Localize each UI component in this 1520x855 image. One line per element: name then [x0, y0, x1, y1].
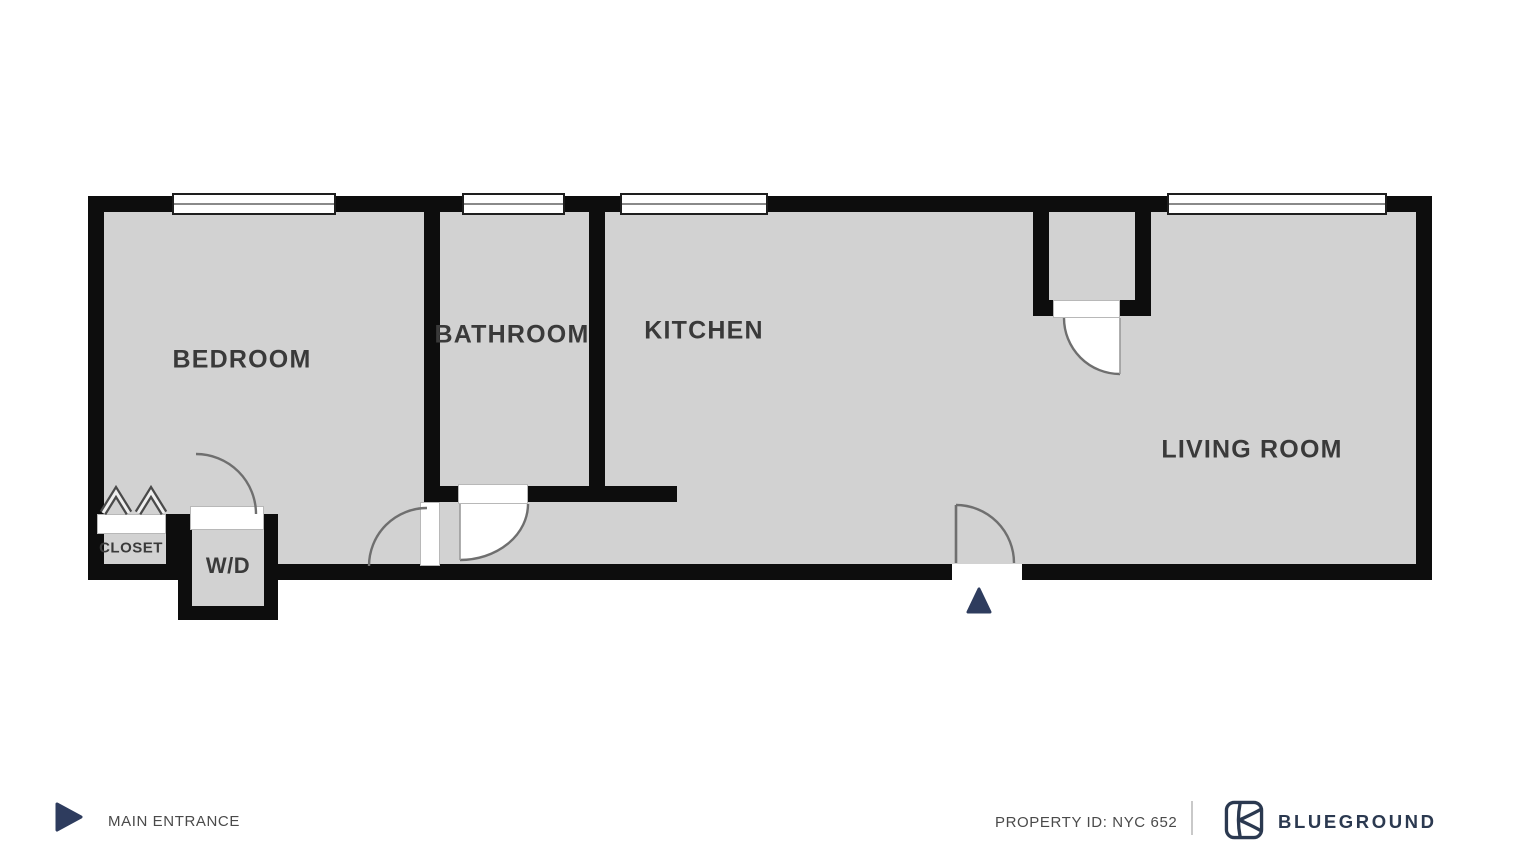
room-label-bathroom: BATHROOM — [435, 321, 590, 350]
bedroom-window — [172, 193, 336, 215]
main-entrance-triangle-icon — [54, 802, 84, 832]
room-label-living-room: LIVING ROOM — [1161, 436, 1342, 465]
floor-plan-page: BEDROOM BATHROOM KITCHEN LIVING ROOM CLO… — [0, 0, 1520, 855]
apartment-floor — [104, 212, 1416, 564]
kitchen-window — [620, 193, 768, 215]
blueground-logo-icon — [1224, 800, 1264, 840]
bedroom-door-leaf — [420, 502, 440, 566]
brand-wordmark: BLUEGROUND — [1278, 811, 1437, 833]
property-id-label: PROPERTY ID: NYC 652 — [995, 814, 1177, 831]
living-room-window — [1167, 193, 1387, 215]
entrance-marker-triangle-icon — [968, 589, 990, 612]
room-label-bedroom: BEDROOM — [173, 346, 312, 375]
main-entrance-opening — [952, 564, 1022, 580]
wall-bathroom-kitchen — [589, 212, 605, 502]
room-label-kitchen: KITCHEN — [644, 317, 764, 346]
alcove-door-opening — [1053, 300, 1120, 318]
closet-opening — [97, 514, 166, 534]
room-label-closet: CLOSET — [99, 540, 163, 557]
footer-divider — [1191, 801, 1193, 835]
wall-bedroom-bathroom — [424, 212, 440, 502]
wd-door-opening — [190, 506, 264, 530]
bathroom-door-opening — [458, 484, 528, 504]
room-label-wd: W/D — [206, 553, 250, 579]
main-entrance-label: MAIN ENTRANCE — [108, 813, 240, 830]
bathroom-window — [462, 193, 565, 215]
